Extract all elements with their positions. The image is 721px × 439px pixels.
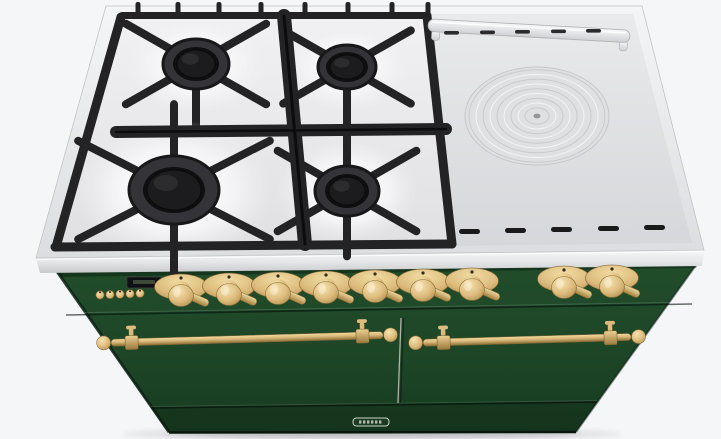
vent-slot xyxy=(515,30,530,34)
badge-mark xyxy=(371,420,373,423)
rail-bracket xyxy=(437,335,450,349)
badge-mark xyxy=(359,420,361,423)
grate-tab xyxy=(217,2,222,17)
vent-slot xyxy=(551,227,572,232)
brand-badge xyxy=(353,418,389,426)
vent-slot xyxy=(505,228,526,233)
badge-mark xyxy=(375,420,377,423)
badge-mark xyxy=(379,420,381,423)
rail-bracket xyxy=(356,329,369,343)
gas-burners xyxy=(75,13,417,276)
range-cooker-render xyxy=(0,0,721,439)
vent-slot xyxy=(644,225,665,230)
simmer-center-dot xyxy=(534,114,541,119)
badge-mark xyxy=(363,420,365,423)
rail-bracket xyxy=(604,331,617,345)
burner-cap xyxy=(147,170,201,210)
vent-slot xyxy=(459,229,480,234)
vent-slot xyxy=(444,31,459,35)
render-viewport[interactable] xyxy=(0,0,721,439)
badge-mark xyxy=(367,420,369,423)
grate-tab xyxy=(136,2,141,17)
burner-cap xyxy=(330,55,364,79)
grate-tab xyxy=(303,2,308,17)
grate-tab xyxy=(426,2,431,17)
rail-bracket xyxy=(125,335,138,349)
rail-finial xyxy=(631,329,645,343)
rail-finial xyxy=(96,336,110,350)
grate-tab xyxy=(390,2,395,17)
vent-slot xyxy=(586,29,601,33)
burner-cap xyxy=(329,177,365,205)
cooktop xyxy=(36,2,704,276)
grate-tab xyxy=(176,2,181,17)
grate-tab xyxy=(346,2,351,17)
vent-slot xyxy=(551,30,566,34)
rail-finial xyxy=(383,328,397,342)
vent-slot xyxy=(480,31,495,35)
plinth xyxy=(151,401,597,434)
burner-cap xyxy=(177,50,215,78)
grate-tab xyxy=(259,2,264,17)
rail-finial xyxy=(408,336,422,350)
vent-slot xyxy=(598,226,619,231)
